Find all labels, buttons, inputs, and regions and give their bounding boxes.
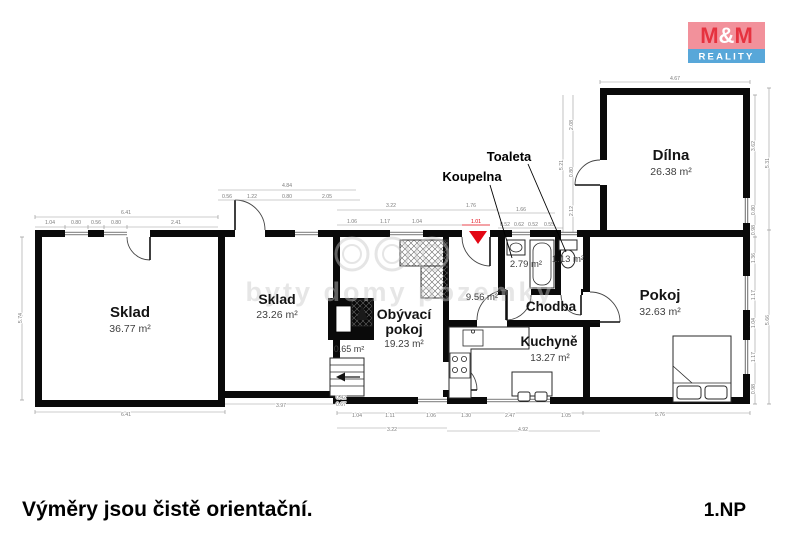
dimension-label: 1.22 [247, 194, 257, 200]
dimension-label: 0.62 [514, 222, 524, 228]
dimension-label: 0.56 [222, 194, 232, 200]
dimension-label: 1.04 [45, 220, 55, 226]
dimension-label: 0.80 [71, 220, 81, 226]
room-area-koupelna: 2.79 m² [510, 259, 542, 270]
dimension-label: 1.04 [412, 219, 422, 225]
dimension-label: 4.92 [518, 427, 528, 433]
dimension-label: 5.76 [655, 412, 665, 418]
dimension-label: 5.66 [765, 315, 771, 325]
room-label-obyvaci-2: pokoj [385, 321, 422, 337]
dimension-label: 6.41 [121, 210, 131, 216]
dimension-label: 4.67 [670, 76, 680, 82]
dimension-label: 0.80 [282, 194, 292, 200]
room-label-sklad1: Sklad [110, 304, 150, 321]
dimension-label: 3.97 [276, 403, 286, 409]
window [65, 230, 88, 237]
dimension-label: 1.36 [751, 253, 757, 263]
dimension-label: 0.52 [528, 222, 538, 228]
room-label-dilna: Dílna [653, 147, 690, 164]
dimension-label: 5.74 [18, 313, 24, 323]
dimension-label: 0.80 [569, 167, 575, 177]
dimension-label: 1.04 [352, 413, 362, 419]
room-label-pokoj: Pokoj [640, 287, 681, 304]
room-area-kuchyne: 13.27 m² [530, 353, 570, 364]
dimension-label: 1.76 [466, 203, 476, 209]
logo-mm-text: M&M [700, 23, 753, 48]
window [743, 340, 750, 374]
room-area-sklad2: 23.26 m² [256, 309, 298, 321]
dimension-label: 2.41 [171, 220, 181, 226]
room-area-chodba: 9.56 m² [466, 292, 498, 303]
dimension-labels: 6.411.040.800.560.802.414.840.561.220.80… [18, 76, 771, 433]
room-label-toaleta: Toaleta [487, 149, 532, 164]
room-label-obyvaci-1: Obývací [377, 306, 433, 322]
dimension-label: 2.05 [322, 194, 332, 200]
floorplan-page: byty domy pozemky 6.411.040.800.560.802.… [0, 0, 800, 533]
room-label-kuchyne: Kuchyně [520, 334, 578, 349]
dimension-label: 2.08 [569, 120, 575, 130]
dimension-label: 3.22 [386, 203, 396, 209]
dimension-label: 1.66 [516, 207, 526, 213]
dimension-label: 5.31 [765, 158, 771, 168]
dimension-label: 0.42 [336, 395, 346, 401]
door-sklad1 [127, 237, 150, 260]
room-area-komora: 0.65 m² [334, 344, 365, 354]
door-dilna [575, 160, 600, 185]
dimension-label: 0.98 [751, 225, 757, 235]
entrance-marker [469, 231, 487, 244]
logo-reality-text: REALITY [698, 52, 754, 63]
window [104, 230, 127, 237]
dimension-label: 1.04 [751, 318, 757, 328]
window [390, 230, 423, 237]
room-area-pokoj: 32.63 m² [639, 306, 681, 318]
room-area-toaleta: 1.13 m² [552, 254, 584, 265]
dimension-label: 1.30 [461, 413, 471, 419]
dimension-label: 6.41 [121, 412, 131, 418]
door-entrance [462, 237, 490, 266]
window [743, 198, 750, 223]
window [418, 397, 447, 404]
floor-plan: byty domy pozemky 6.411.040.800.560.802.… [0, 0, 800, 533]
window [743, 276, 750, 310]
window [512, 230, 530, 237]
window [295, 230, 318, 237]
room-label-chodba: Chodba [526, 299, 577, 314]
dimension-label: 2.47 [505, 413, 515, 419]
dimension-label: 4.84 [282, 183, 292, 189]
chair [518, 392, 530, 401]
closet-inner [336, 306, 351, 332]
door-sklad2-exterior [235, 200, 265, 230]
room-area-sklad1: 36.77 m² [109, 323, 151, 335]
floor-label: 1.NP [704, 500, 747, 521]
dimension-label: 3.62 [751, 141, 757, 151]
dimension-label: 0.56 [91, 220, 101, 226]
stairs [330, 358, 364, 396]
room-area-dilna: 26.38 m² [650, 166, 692, 178]
dimension-label: 1.17 [751, 352, 757, 362]
dimension-label: 1.17 [380, 219, 390, 225]
room-area-obyvaci: 19.23 m² [384, 339, 424, 350]
dimension-label: 3.22 [387, 427, 397, 433]
room-label-sklad2: Sklad [258, 291, 295, 307]
window [561, 230, 577, 237]
door-pokoj [590, 292, 620, 322]
dimension-label: 0.98 [751, 384, 757, 394]
dimension-label: 0.80 [751, 205, 757, 215]
dimension-label: 1.06 [426, 413, 436, 419]
disclaimer-text: Výměry jsou čistě orientační. [22, 498, 313, 521]
agency-logo: M&M REALITY [688, 22, 765, 63]
pillow [677, 386, 701, 399]
room-label-koupelna: Koupelna [442, 169, 502, 184]
dimension-label: 1.01 [471, 219, 481, 225]
walls [35, 88, 750, 407]
dimension-label: 0.80 [111, 220, 121, 226]
dimension-label: 1.11 [385, 413, 395, 419]
dimension-label: 1.05 [561, 413, 571, 419]
dimension-label: 0.67 [336, 402, 346, 408]
dimension-label: 5.21 [559, 160, 565, 170]
chair [535, 392, 547, 401]
dimension-label: 0.55 [544, 222, 554, 228]
dimension-label: 2.12 [569, 206, 575, 216]
dimension-label: 1.06 [347, 219, 357, 225]
dimension-lines [20, 80, 771, 431]
dimension-label: 1.17 [751, 290, 757, 300]
pillow [705, 386, 727, 399]
